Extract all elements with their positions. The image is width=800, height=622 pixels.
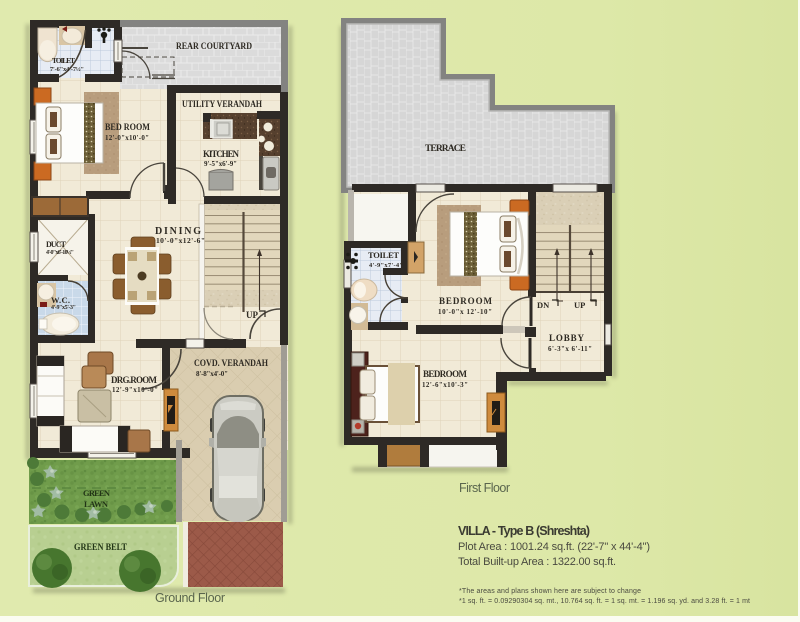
svg-text:W.C.: W.C. bbox=[51, 295, 70, 305]
svg-text:GREEN: GREEN bbox=[83, 488, 111, 498]
svg-text:UTILITY VERANDAH: UTILITY VERANDAH bbox=[182, 100, 262, 110]
svg-text:4'-0"x6'-10½": 4'-0"x6'-10½" bbox=[46, 249, 74, 256]
svg-text:4'-9"x5'-3": 4'-9"x5'-3" bbox=[51, 305, 76, 311]
svg-text:DUCT: DUCT bbox=[46, 240, 67, 249]
svg-text:First Floor: First Floor bbox=[459, 481, 510, 495]
svg-text:Plot Area : 1001.24 sq.ft. (22: Plot Area : 1001.24 sq.ft. (22'-7" x 44'… bbox=[458, 541, 650, 553]
svg-text:COVD. VERANDAH: COVD. VERANDAH bbox=[194, 358, 268, 368]
svg-text:UP: UP bbox=[574, 300, 585, 310]
svg-text:VILLA - Type B (Shreshta): VILLA - Type B (Shreshta) bbox=[458, 524, 590, 538]
svg-text:6'-3"x 6'-11": 6'-3"x 6'-11" bbox=[548, 345, 592, 353]
svg-text:TOILET: TOILET bbox=[52, 56, 75, 65]
svg-text:DRG.ROOM: DRG.ROOM bbox=[111, 375, 158, 385]
svg-text:10'-0"x12'-6": 10'-0"x12'-6" bbox=[156, 236, 205, 245]
svg-text:Ground Floor: Ground Floor bbox=[155, 591, 225, 605]
svg-text:UP: UP bbox=[246, 310, 258, 320]
svg-text:7'-6"x4'-7½": 7'-6"x4'-7½" bbox=[50, 66, 84, 73]
svg-text:12'-9"x10'-0": 12'-9"x10'-0" bbox=[112, 386, 158, 394]
svg-text:GREEN BELT: GREEN BELT bbox=[74, 543, 128, 553]
svg-text:REAR COURTYARD: REAR COURTYARD bbox=[176, 42, 252, 52]
svg-text:LOBBY: LOBBY bbox=[549, 333, 585, 343]
svg-text:10'-0"x 12'-10": 10'-0"x 12'-10" bbox=[438, 308, 492, 316]
svg-text:LAWN: LAWN bbox=[84, 499, 109, 509]
svg-text:TOILET: TOILET bbox=[368, 250, 399, 260]
svg-text:4'-9"x7'-4": 4'-9"x7'-4" bbox=[369, 262, 403, 269]
svg-text:KITCHEN: KITCHEN bbox=[203, 149, 240, 159]
svg-text:12'-0"x10'-0": 12'-0"x10'-0" bbox=[105, 134, 149, 142]
svg-text:BEDROOM: BEDROOM bbox=[439, 296, 493, 306]
svg-text:9'-5"x6'-9": 9'-5"x6'-9" bbox=[204, 160, 237, 168]
svg-text:*1 sq. ft. = 0.09290304 sq. mt: *1 sq. ft. = 0.09290304 sq. mt., 10.764 … bbox=[459, 598, 750, 605]
svg-text:DN: DN bbox=[537, 300, 550, 310]
svg-text:BED ROOM: BED ROOM bbox=[105, 122, 150, 132]
svg-text:TERRACE: TERRACE bbox=[425, 144, 466, 154]
svg-text:*The areas and plans shown her: *The areas and plans shown here are subj… bbox=[459, 588, 641, 595]
svg-text:8'-8"x4'-0": 8'-8"x4'-0" bbox=[196, 370, 228, 378]
svg-text:12'-6"x10'-3": 12'-6"x10'-3" bbox=[422, 381, 468, 389]
svg-text:BEDROOM: BEDROOM bbox=[423, 369, 468, 379]
svg-text:Total Built-up Area : 1322.00: Total Built-up Area : 1322.00 sq.ft. bbox=[458, 556, 616, 568]
